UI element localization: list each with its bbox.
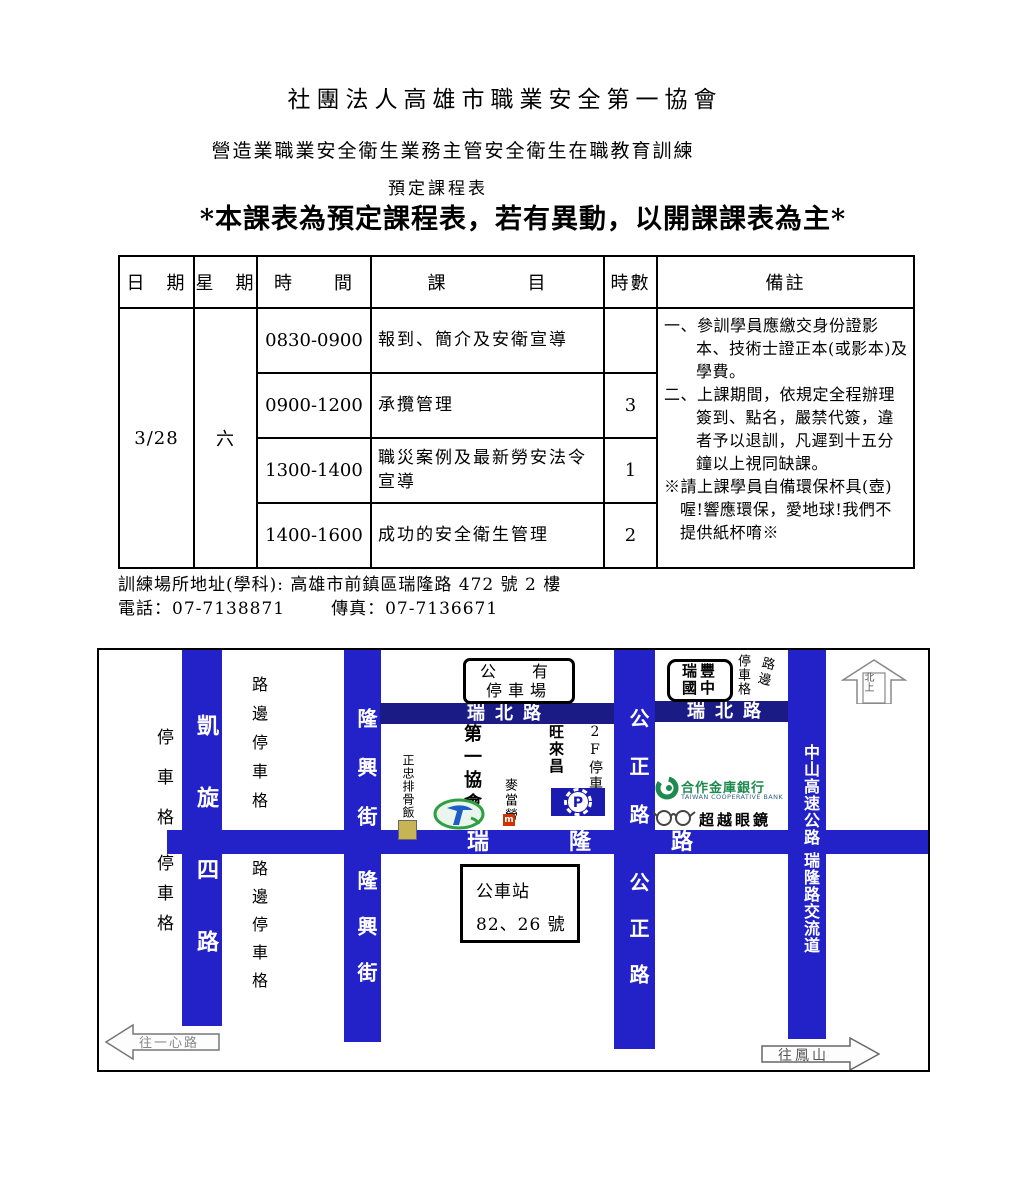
- table-row: 3/28 六 0830-0900 報到、簡介及安衛宣導 一、參訓學員應繳交身份證…: [119, 308, 914, 373]
- ruifeng-line1: 瑞豐: [670, 663, 730, 680]
- time-cell: 1300-1400: [257, 438, 371, 503]
- bus-stop-routes: 82、26 號: [463, 910, 577, 935]
- road-label-ruibei-left: 瑞北路: [467, 704, 551, 724]
- zhengzhong-restaurant-label: 正忠排骨飯: [400, 754, 417, 819]
- hours-cell: 3: [604, 373, 657, 438]
- road-label-zhongshan-freeway: 中山高速公路: [798, 744, 822, 846]
- wanglaichang-label: 旺來昌: [546, 724, 567, 775]
- time-cell: 0830-0900: [257, 308, 371, 373]
- remark-item: ※請上課學員自備環保杯具(壺)喔!響應環保，愛地球!我們不提供紙杯唷※: [664, 475, 908, 544]
- location-map: 凱旋 四路 隆興街 隆興街 公正路 公正路 中山高速公路 瑞隆路交流道 瑞北路 …: [97, 648, 930, 1072]
- parking-stall-label-upper-left: 停車格: [151, 728, 176, 848]
- subject-cell: 報到、簡介及安衛宣導: [371, 308, 604, 373]
- remark-item: 二、上課期間，依規定全程辦理簽到、點名，嚴禁代簽，違者予以退訓，凡遲到十五分鐘以…: [664, 383, 908, 475]
- fax-number: 傳真：07-7136671: [331, 599, 498, 619]
- header-subject: 課 目: [371, 256, 604, 308]
- first-association-logo: [433, 798, 485, 830]
- parking-p-icon: P: [551, 788, 605, 816]
- road-label-longxing-upper: 隆興街: [352, 708, 381, 855]
- subject-cell: 成功的安全衛生管理: [371, 503, 604, 568]
- table-header-row: 日 期 星 期 時 間 課 目 時數 備註: [119, 256, 914, 308]
- hours-cell: 2: [604, 503, 657, 568]
- header-hours: 時數: [604, 256, 657, 308]
- header-date: 日 期: [119, 256, 194, 308]
- org-title: 社團法人高雄市職業安全第一協會: [0, 80, 1010, 114]
- ruifeng-line2: 國中: [670, 680, 730, 697]
- arrow-right-fengshan-label: 往鳳山: [778, 1045, 829, 1065]
- svg-text:P: P: [573, 795, 583, 811]
- subject-cell: 承攬管理: [371, 373, 604, 438]
- header-remarks: 備註: [657, 256, 914, 308]
- public-parking-lot-box: 公 有 停車場: [463, 658, 575, 704]
- phone-number: 電話：07-7138871: [118, 599, 285, 619]
- road-label-ruibei-right: 瑞北路: [687, 702, 771, 722]
- public-parking-line1: 公 有: [466, 662, 572, 681]
- road-label-ruilong-main: 瑞隆路: [467, 831, 773, 854]
- bus-stop-box: 公車站 82、26 號: [460, 864, 580, 943]
- hours-cell: 1: [604, 438, 657, 503]
- roadside-parking-label-upper: 路邊停車格: [246, 676, 270, 821]
- arrow-left-yixin-label: 往一心路: [139, 1032, 199, 1051]
- road-label-kaixuan: 凱旋: [190, 714, 222, 858]
- remarks-cell: 一、參訓學員應繳交身份證影本、技術士證正本(或影本)及學費。 二、上課期間，依規…: [657, 308, 914, 568]
- document-page: 社團法人高雄市職業安全第一協會 營造業職業安全衛生業務主管安全衛生在職教育訓練 …: [0, 0, 1026, 1193]
- glasses-icon: [652, 807, 696, 827]
- road-label-ruilong-interchange: 瑞隆路交流道: [798, 852, 822, 954]
- bus-stop-label: 公車站: [463, 877, 577, 902]
- coop-bank-logo: [655, 776, 679, 800]
- contact-line: 電話：07-7138871傳真：07-7136671: [118, 594, 498, 619]
- north-arrow-label: 北上: [860, 672, 875, 692]
- remark-item: 一、參訓學員應繳交身份證影本、技術士證正本(或影本)及學費。: [664, 314, 908, 383]
- mcdonalds-icon: m: [503, 814, 515, 826]
- time-cell: 1400-1600: [257, 503, 371, 568]
- training-address: 訓練場所地址(學科): 高雄市前鎮區瑞隆路 472 號 2 樓: [118, 570, 561, 595]
- road-label-kaixuan-4th: 四路: [190, 858, 222, 1002]
- roadside-parking-side-topright: 路邊: [751, 654, 777, 690]
- glasses-shop-label: 超越眼鏡: [699, 809, 771, 830]
- ruifeng-school-box: 瑞豐 國中: [667, 659, 733, 702]
- road-label-gongzheng-lower: 公正路: [624, 872, 653, 1010]
- public-parking-line2: 停車場: [466, 681, 572, 700]
- roadside-parking-label-lower: 路邊停車格: [246, 860, 270, 1000]
- time-cell: 0900-1200: [257, 373, 371, 438]
- schedule-table: 日 期 星 期 時 間 課 目 時數 備註 3/28 六 0830-0900 報…: [118, 255, 915, 569]
- header-weekday: 星 期: [194, 256, 257, 308]
- coop-bank-english-label: TAIWAN COOPERATIVE BANK: [681, 793, 783, 801]
- parking-symbol-badge: P: [551, 788, 605, 816]
- zhengzhong-restaurant-icon: [398, 820, 417, 840]
- weekday-cell: 六: [194, 308, 257, 568]
- date-cell: 3/28: [119, 308, 194, 568]
- parking-stall-label-lower-left: 停車格: [151, 854, 176, 944]
- notice-line: *本課表為預定課程表，若有異動，以開課課表為主*: [20, 197, 1026, 236]
- schedule-label: 預定課程表: [0, 174, 876, 199]
- course-title: 營造業職業安全衛生業務主管安全衛生在職教育訓練: [0, 136, 906, 163]
- subject-cell: 職災案例及最新勞安法令宣導: [371, 438, 604, 503]
- hours-cell: [604, 308, 657, 373]
- header-time: 時 間: [257, 256, 371, 308]
- road-label-longxing-lower: 隆興街: [352, 870, 381, 1008]
- roadside-parking-stall-topright: 停車格: [733, 654, 752, 696]
